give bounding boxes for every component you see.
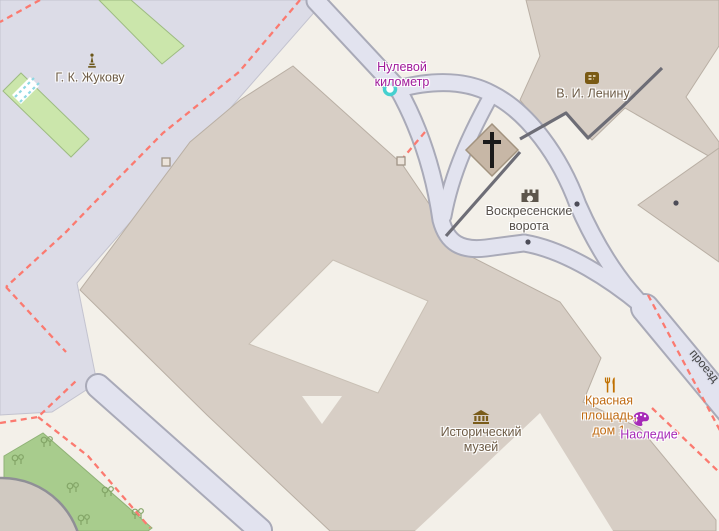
gate-marker xyxy=(162,158,170,166)
gate-marker xyxy=(397,157,405,165)
map-canvas[interactable]: Г. К. Жукову Нулевой километр В. И. Лени… xyxy=(0,0,719,531)
map-tiles xyxy=(0,0,719,531)
zero-km-marker-icon xyxy=(385,84,396,95)
